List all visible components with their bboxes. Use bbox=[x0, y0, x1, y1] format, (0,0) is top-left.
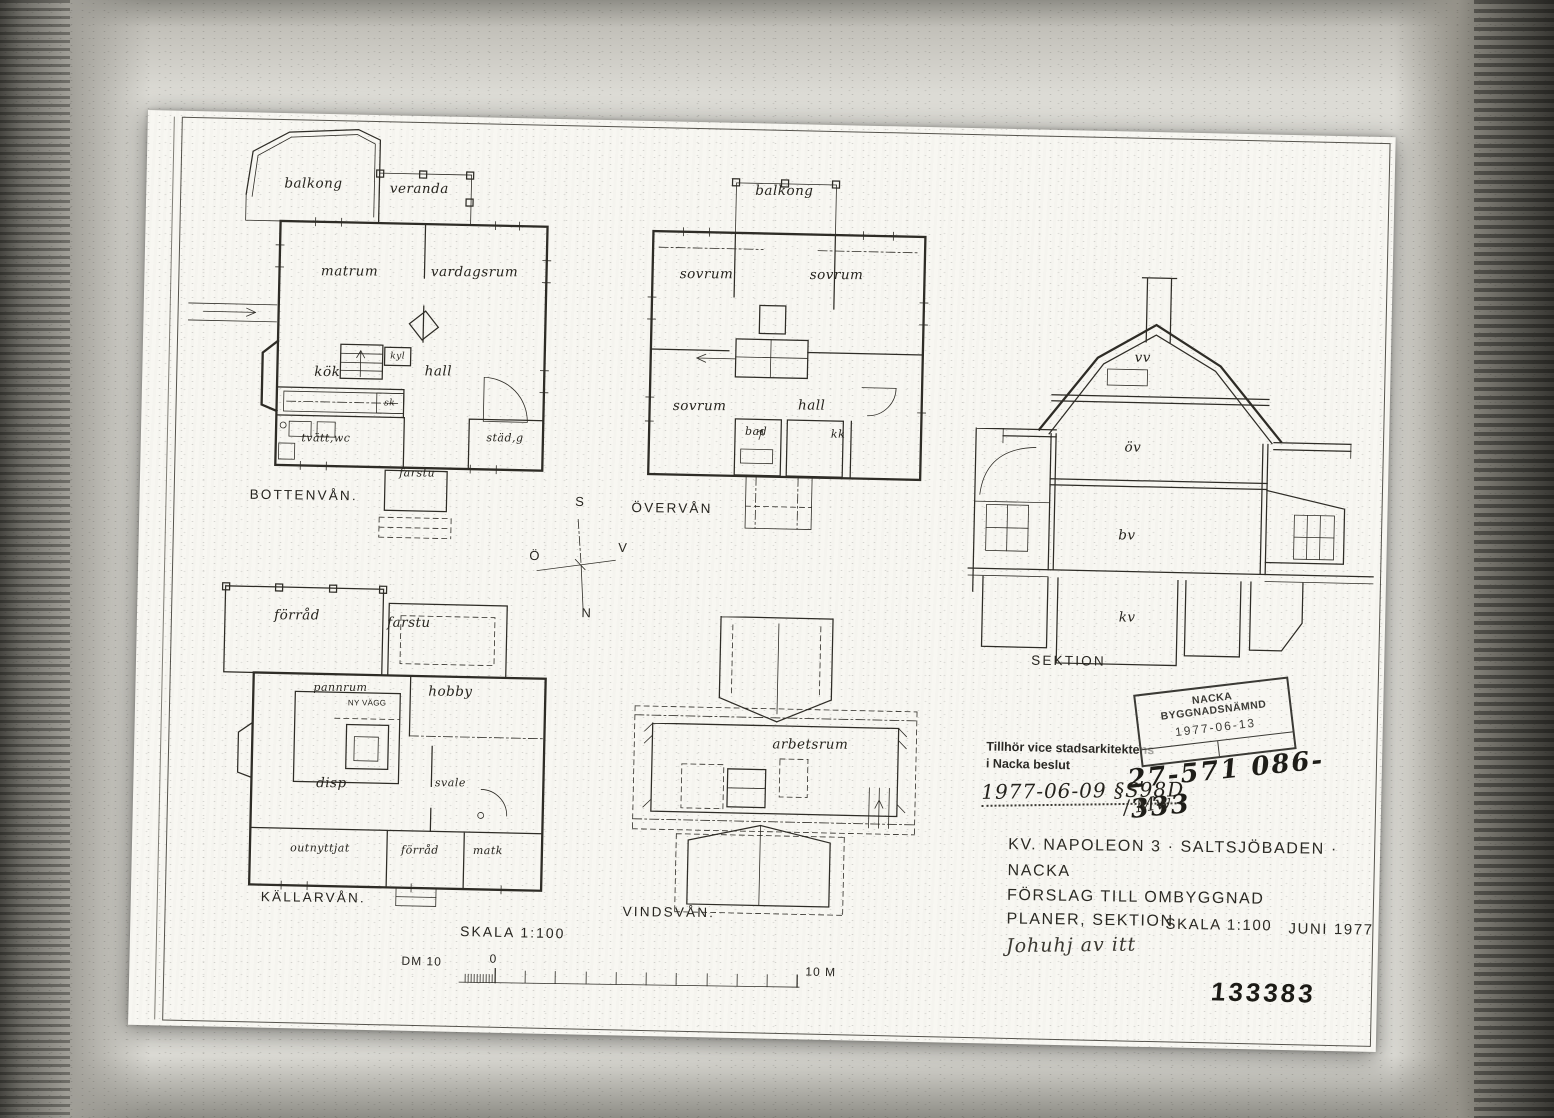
room-label-balkong-ov: balkong bbox=[755, 183, 813, 199]
sheet-margin-line bbox=[154, 117, 175, 1020]
compass-south-label: S bbox=[575, 494, 584, 509]
scan-edge-left bbox=[0, 0, 150, 1118]
section-label-ov: öv bbox=[1124, 440, 1141, 456]
titleblock-scale: SKALA 1:100 bbox=[1165, 916, 1272, 935]
room-label-tvatt-wc: tvätt,wc bbox=[301, 431, 350, 444]
room-label-hall-ov: hall bbox=[798, 397, 825, 413]
room-label-farstu-bv: farstu bbox=[399, 466, 435, 479]
room-label-matk: matk bbox=[473, 844, 503, 857]
section-label-kv: kv bbox=[1119, 609, 1136, 625]
scanned-drawing-page: { "colors": {"ink": "#2e2c26", "paper": … bbox=[0, 0, 1554, 1118]
room-label-matrum: matrum bbox=[321, 263, 378, 279]
compass-north-label: N bbox=[581, 605, 591, 620]
room-label-outnyttjat: outnyttjat bbox=[290, 841, 350, 854]
section-label-bv: bv bbox=[1118, 527, 1135, 543]
room-label-sovrum-ne: sovrum bbox=[810, 267, 864, 283]
drawing-sheet: S Ö V N balkong veranda matrum vardagsru… bbox=[128, 110, 1396, 1052]
annotation-ny-vagg: NY VÄGG bbox=[348, 698, 386, 707]
room-label-kyl: kyl bbox=[390, 351, 405, 361]
room-label-kok: kök bbox=[314, 364, 340, 380]
titleblock-signature: Johuhj av itt bbox=[1006, 933, 1136, 957]
section-label-vv: vv bbox=[1135, 350, 1151, 366]
room-label-arbetsrum: arbetsrum bbox=[772, 736, 848, 752]
compass-east-label: Ö bbox=[529, 548, 539, 563]
scan-edge-bottom bbox=[0, 1048, 1554, 1118]
caption-kallarvan: KÄLLARVÅN. bbox=[261, 889, 366, 905]
room-label-hall-bv: hall bbox=[425, 363, 452, 379]
scan-edge-right bbox=[1394, 0, 1554, 1118]
room-label-pannrum: pannrum bbox=[313, 681, 367, 694]
titleblock-line3: FÖRSLAG TILL OMBYGGNAD bbox=[1007, 887, 1265, 909]
room-label-stad-g: städ,g bbox=[486, 431, 523, 444]
scalebar-ruler bbox=[429, 964, 819, 996]
room-label-forrad: förråd bbox=[274, 607, 320, 623]
caption-sektion: SEKTION bbox=[1031, 653, 1106, 669]
scan-edge-top bbox=[0, 0, 1554, 110]
room-label-forrad2: förråd bbox=[401, 844, 439, 857]
room-label-veranda: veranda bbox=[390, 181, 449, 197]
titleblock-date: JUNI 1977 bbox=[1288, 920, 1374, 938]
room-label-vardagsrum: vardagsrum bbox=[431, 264, 518, 280]
titleblock-line4: PLANER, SEKTION bbox=[1006, 911, 1173, 931]
scalebar-title: SKALA 1:100 bbox=[460, 923, 566, 941]
titleblock-line1: KV. NAPOLEON 3 · SALTSJÖBADEN · bbox=[1008, 836, 1338, 859]
room-label-sk: sk bbox=[384, 398, 395, 408]
room-label-svale: svale bbox=[435, 776, 466, 789]
room-label-sovrum-sw: sovrum bbox=[673, 398, 727, 414]
room-label-farstu-kv: farstu bbox=[387, 615, 431, 631]
room-label-kk: kk bbox=[831, 428, 845, 441]
room-label-hobby: hobby bbox=[428, 684, 472, 700]
room-label-sovrum-nw: sovrum bbox=[680, 266, 734, 282]
overvan-plan-drawing bbox=[637, 177, 965, 544]
caption-overvan: ÖVERVÅN bbox=[631, 500, 712, 516]
room-label-disp: disp bbox=[316, 775, 347, 791]
room-label-balkong-bv: balkong bbox=[284, 175, 342, 191]
sektion-drawing bbox=[950, 246, 1380, 705]
compass-west-label: V bbox=[618, 540, 627, 555]
room-label-bad: bad bbox=[745, 425, 767, 438]
titleblock-line2: NACKA bbox=[1007, 862, 1070, 881]
caption-vindsvan: VINDSVÅN. bbox=[623, 904, 716, 920]
archive-number: 133383 bbox=[1210, 976, 1318, 1009]
caption-bottenvan: BOTTENVÅN. bbox=[250, 487, 358, 503]
